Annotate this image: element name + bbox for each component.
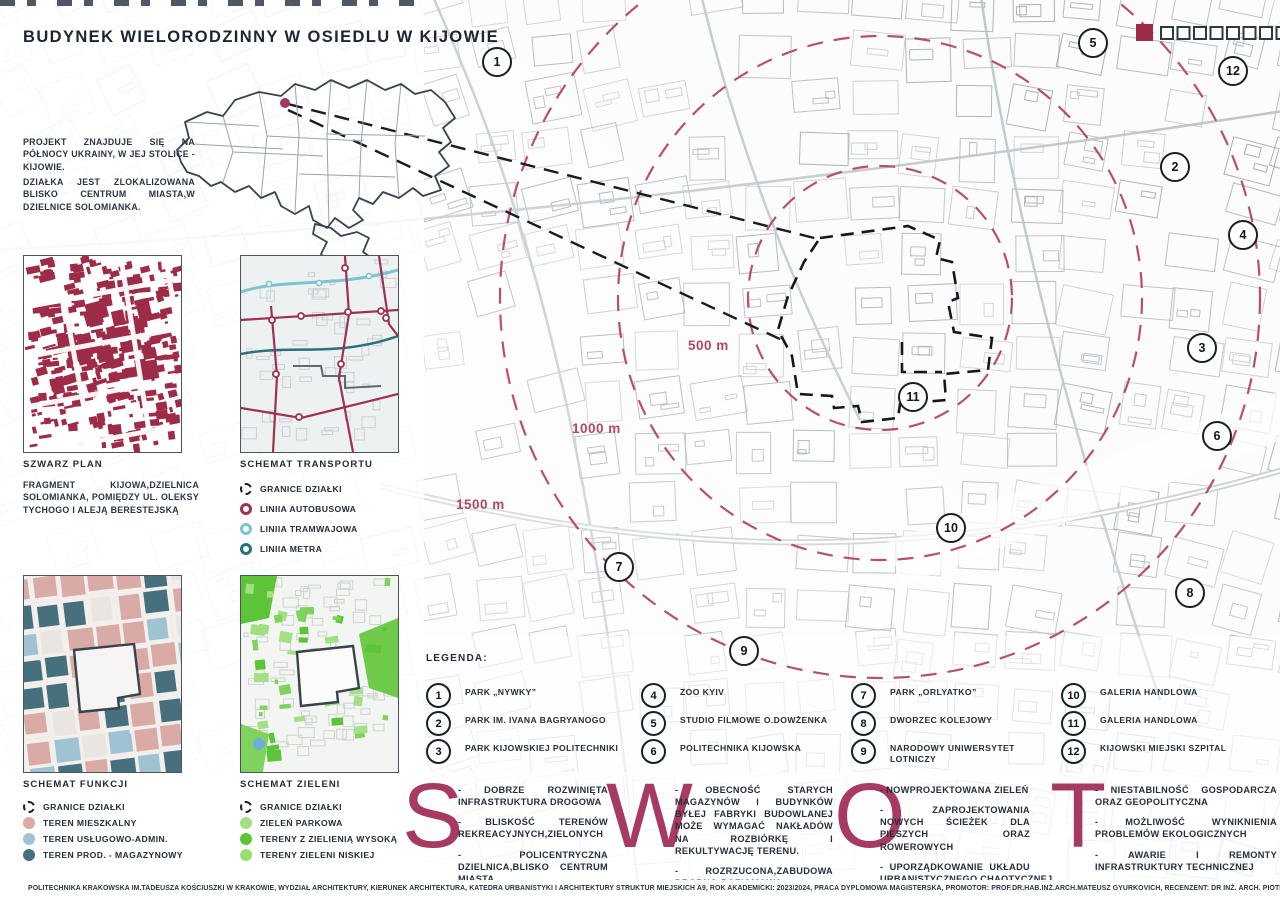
dashed-circle-icon — [240, 801, 252, 813]
legenda-label: PARK „NYWKY” — [465, 683, 625, 708]
map-marker-9: 9 — [729, 636, 759, 666]
map-marker-1: 1 — [482, 47, 512, 77]
legend-row: LINIIA TRAMWAJOWA — [240, 523, 358, 535]
functions-scheme-caption: SCHEMAT FUNKCJI — [23, 779, 128, 790]
greenery-scheme-thumbnail — [240, 575, 399, 773]
legenda-heading: LEGENDA: — [426, 653, 488, 664]
tram-line-icon — [240, 523, 252, 535]
map-marker-8: 8 — [1175, 578, 1205, 608]
legenda-item-3: 3PARK KIJOWSKIEJ POLITECHNIKI — [426, 739, 625, 764]
footer-text: POLITECHNIKA KRAKOWSKA IM.TADEUSZA KOŚCI… — [28, 885, 1280, 892]
legend-label: LINIIA AUTOBUSOWA — [260, 504, 356, 514]
legend-label: TEREN USŁUGOWO-ADMIN. — [43, 834, 168, 844]
legenda-item-12: 12KIJOWSKI MIEJSKI SZPITAL — [1061, 739, 1260, 764]
legenda-label: STUDIO FILMOWE O.DOWŻENKA — [680, 711, 840, 736]
map-marker-12: 12 — [1218, 56, 1248, 86]
szwarz-plan-description: FRAGMENT KIJOWA,DZIELNICA SOLOMIANKA, PO… — [23, 479, 199, 516]
legend-row: TERENY ZIELENI NISKIEJ — [240, 849, 397, 861]
distance-label: 500 m — [688, 338, 729, 353]
map-marker-7: 7 — [604, 552, 634, 582]
legenda-item-4: 4ZOO KYIV — [641, 683, 840, 708]
transport-legend: GRANICE DZIAŁKILINIIA AUTOBUSOWALINIIA T… — [240, 483, 358, 563]
map-marker-6: 6 — [1202, 421, 1232, 451]
legenda-number-circle: 12 — [1061, 739, 1086, 764]
legend-row: TERENY Z ZIELIENIĄ WYSOKĄ — [240, 833, 397, 845]
oblast-borders — [185, 80, 425, 226]
ukraine-outline — [177, 80, 455, 228]
szwarz-plan-thumbnail — [23, 255, 182, 453]
legenda-item-8: 8DWORZEC KOLEJOWY — [851, 711, 1050, 736]
legend-row: LINIIA METRA — [240, 543, 358, 555]
transport-scheme-thumbnail — [240, 255, 399, 453]
legend-row: TEREN MIESZKALNY — [23, 817, 183, 829]
map-marker-10: 10 — [936, 513, 966, 543]
legenda-label: PARK „ORLYATKO” — [890, 683, 1050, 708]
legenda-label: POLITECHNIKA KIJOWSKA — [680, 739, 840, 764]
legenda-label: GALERIA HANDLOWA — [1100, 683, 1260, 708]
poster-board: 123456789101112500 m1000 m1500 m BUDYNEK… — [0, 0, 1280, 904]
map-marker-11: 11 — [898, 382, 928, 412]
legenda-item-2: 2PARK IM. IVANA BAGRYANOGO — [426, 711, 625, 736]
legenda-label: ZOO KYIV — [680, 683, 840, 708]
legend-label: LINIIA METRA — [260, 544, 322, 554]
site-boundary — [778, 226, 992, 422]
legenda-item-7: 7PARK „ORLYATKO” — [851, 683, 1050, 708]
legend-row: ZIELEŃ PARKOWA — [240, 817, 397, 829]
legenda-label: KIJOWSKI MIEJSKI SZPITAL — [1100, 739, 1260, 764]
legenda-item-11: 11GALERIA HANDLOWA — [1061, 711, 1260, 736]
legenda-item-10: 10GALERIA HANDLOWA — [1061, 683, 1260, 708]
squares-row — [1136, 24, 1280, 41]
legend-label: TEREN PROD. - MAGAZYNOWY — [43, 850, 183, 860]
legenda-item-6: 6POLITECHNIKA KIJOWSKA — [641, 739, 840, 764]
ukraine-map — [163, 52, 463, 272]
map-marker-4: 4 — [1228, 220, 1258, 250]
legend-label: ZIELEŃ PARKOWA — [260, 818, 343, 828]
legenda-label: NARODOWY UNIWERSYTET LOTNICZY — [890, 739, 1050, 765]
map-marker-2: 2 — [1160, 152, 1190, 182]
legend-row: GRANICE DZIAŁKI — [23, 801, 183, 813]
functions-legend: GRANICE DZIAŁKITEREN MIESZKALNYTEREN USŁ… — [23, 801, 183, 865]
legenda-item-9: 9NARODOWY UNIWERSYTET LOTNICZY — [851, 739, 1050, 765]
distance-label: 1000 m — [572, 421, 621, 436]
map-marker-5: 5 — [1078, 28, 1108, 58]
legenda-number-circle: 7 — [851, 683, 876, 708]
intro-paragraph-2: DZIAŁKA JEST ZLOKALIZOWANA BLISKO CENTRU… — [23, 176, 195, 213]
legend-row: GRANICE DZIAŁKI — [240, 801, 397, 813]
legend-label: LINIIA TRAMWAJOWA — [260, 524, 358, 534]
functions-scheme-thumbnail — [23, 575, 182, 773]
transport-scheme-caption: SCHEMAT TRANSPORTU — [240, 459, 373, 470]
dashed-circle-icon — [240, 483, 252, 495]
radius-1000m-circle — [618, 36, 1142, 560]
services-dot-icon — [23, 833, 35, 845]
legend-label: GRANICE DZIAŁKI — [260, 802, 342, 812]
legenda-number-circle: 6 — [641, 739, 666, 764]
legenda-number-circle: 11 — [1061, 711, 1086, 736]
legenda-label: DWORZEC KOLEJOWY — [890, 711, 1050, 736]
legenda-number-circle: 5 — [641, 711, 666, 736]
legend-row: LINIIA AUTOBUSOWA — [240, 503, 358, 515]
legenda-number-circle: 8 — [851, 711, 876, 736]
legenda-number-circle: 10 — [1061, 683, 1086, 708]
distance-label: 1500 m — [456, 497, 505, 512]
legenda-label: PARK IM. IVANA BAGRYANOGO — [465, 711, 625, 736]
legenda-item-1: 1PARK „NYWKY” — [426, 683, 625, 708]
legenda-label: GALERIA HANDLOWA — [1100, 711, 1260, 736]
legenda-number-circle: 1 — [426, 683, 451, 708]
legend-row: TEREN USŁUGOWO-ADMIN. — [23, 833, 183, 845]
legend-label: TERENY Z ZIELIENIĄ WYSOKĄ — [260, 834, 397, 844]
park-green-dot-icon — [240, 817, 252, 829]
legenda-item-5: 5STUDIO FILMOWE O.DOWŻENKA — [641, 711, 840, 736]
map-marker-3: 3 — [1187, 333, 1217, 363]
legenda-number-circle: 4 — [641, 683, 666, 708]
low-green-dot-icon — [240, 849, 252, 861]
legend-label: GRANICE DZIAŁKI — [43, 802, 125, 812]
intro-paragraph-1: PROJEKT ZNAJDUJE SIĘ NA PÓŁNOCY UKRAINY,… — [23, 136, 195, 173]
cropped-text-fragment — [0, 0, 420, 6]
footer-bar: POLITECHNIKA KRAKOWSKA IM.TADEUSZA KOŚCI… — [0, 880, 1280, 904]
industrial-dot-icon — [23, 849, 35, 861]
metro-line-icon — [240, 543, 252, 555]
legenda-number-circle: 3 — [426, 739, 451, 764]
high-green-dot-icon — [240, 833, 252, 845]
kyiv-location-dot — [280, 98, 290, 108]
residential-dot-icon — [23, 817, 35, 829]
legend-row: GRANICE DZIAŁKI — [240, 483, 358, 495]
greenery-scheme-caption: SCHEMAT ZIELENI — [240, 779, 340, 790]
greenery-legend: GRANICE DZIAŁKIZIELEŃ PARKOWATERENY Z ZI… — [240, 801, 397, 865]
bus-line-icon — [240, 503, 252, 515]
legend-row: TEREN PROD. - MAGAZYNOWY — [23, 849, 183, 861]
legend-label: TERENY ZIELENI NISKIEJ — [260, 850, 375, 860]
legenda-number-circle: 9 — [851, 739, 876, 764]
poster-title: BUDYNEK WIELORODZINNY W OSIEDLU W KIJOWI… — [23, 28, 499, 47]
szwarz-plan-caption: SZWARZ PLAN — [23, 459, 103, 470]
legenda-number-circle: 2 — [426, 711, 451, 736]
dashed-circle-icon — [23, 801, 35, 813]
legend-label: TEREN MIESZKALNY — [43, 818, 137, 828]
legenda-label: PARK KIJOWSKIEJ POLITECHNIKI — [465, 739, 625, 764]
legend-label: GRANICE DZIAŁKI — [260, 484, 342, 494]
